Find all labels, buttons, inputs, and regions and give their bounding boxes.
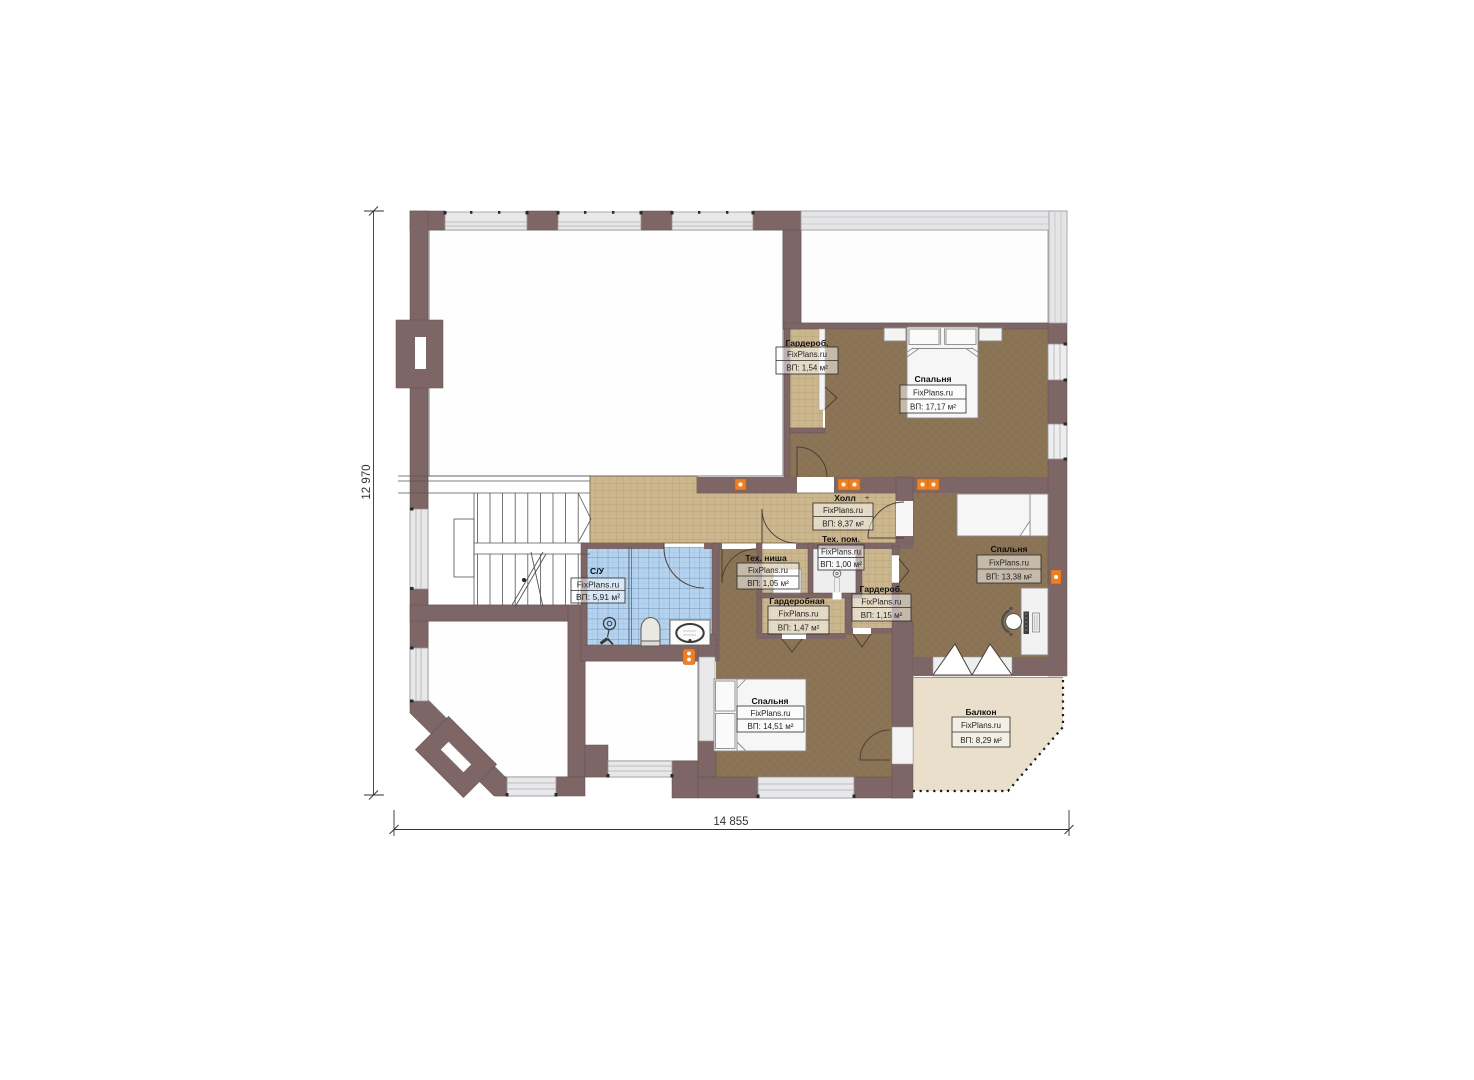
svg-text:С/У: С/У	[590, 566, 605, 576]
svg-text:Спальня: Спальня	[914, 374, 951, 384]
svg-text:ВП: 1,15 м²: ВП: 1,15 м²	[861, 611, 903, 620]
svg-text:Холл: Холл	[834, 493, 856, 503]
svg-text:ВП: 8,37 м²: ВП: 8,37 м²	[822, 520, 864, 529]
svg-text:FixPlans.ru: FixPlans.ru	[823, 506, 863, 515]
svg-text:FixPlans.ru: FixPlans.ru	[577, 580, 620, 590]
svg-text:ВП: 13,38 м²: ВП: 13,38 м²	[986, 573, 1032, 582]
svg-text:Тех. пом.: Тех. пом.	[822, 534, 860, 544]
svg-text:14 855: 14 855	[713, 816, 748, 828]
svg-text:ВП: 1,00 м²: ВП: 1,00 м²	[820, 560, 862, 569]
svg-text:FixPlans.ru: FixPlans.ru	[821, 548, 861, 557]
svg-text:FixPlans.ru: FixPlans.ru	[961, 721, 1001, 730]
svg-text:+: +	[865, 495, 869, 502]
svg-text:Гардероб.: Гардероб.	[785, 338, 828, 348]
svg-text:ВП: 1,54 м²: ВП: 1,54 м²	[786, 364, 828, 373]
svg-text:ВП: 1,05 м²: ВП: 1,05 м²	[747, 579, 789, 588]
svg-text:ВП: 8,29 м²: ВП: 8,29 м²	[960, 736, 1002, 745]
svg-text:FixPlans.ru: FixPlans.ru	[989, 559, 1029, 568]
svg-text:ВП: 1,47 м²: ВП: 1,47 м²	[778, 624, 820, 633]
svg-text:12 970: 12 970	[361, 464, 373, 499]
svg-text:ВП: 5,91 м²: ВП: 5,91 м²	[576, 592, 620, 602]
svg-text:FixPlans.ru: FixPlans.ru	[748, 566, 788, 575]
svg-text:Гардеробная: Гардеробная	[769, 596, 825, 606]
svg-text:FixPlans.ru: FixPlans.ru	[750, 709, 790, 718]
svg-text:Балкон: Балкон	[965, 707, 996, 717]
svg-text:ВП: 17,17 м²: ВП: 17,17 м²	[910, 403, 956, 412]
svg-text:FixPlans.ru: FixPlans.ru	[861, 598, 901, 607]
svg-text:FixPlans.ru: FixPlans.ru	[778, 610, 818, 619]
svg-text:Спальня: Спальня	[751, 696, 788, 706]
svg-text:FixPlans.ru: FixPlans.ru	[787, 350, 827, 359]
svg-text:Тех. ниша: Тех. ниша	[745, 553, 787, 563]
svg-text:FixPlans.ru: FixPlans.ru	[913, 389, 953, 398]
svg-text:ВП: 14,51 м²: ВП: 14,51 м²	[748, 722, 794, 731]
svg-text:Гардероб.: Гардероб.	[859, 584, 902, 594]
svg-text:Спальня: Спальня	[990, 544, 1027, 554]
